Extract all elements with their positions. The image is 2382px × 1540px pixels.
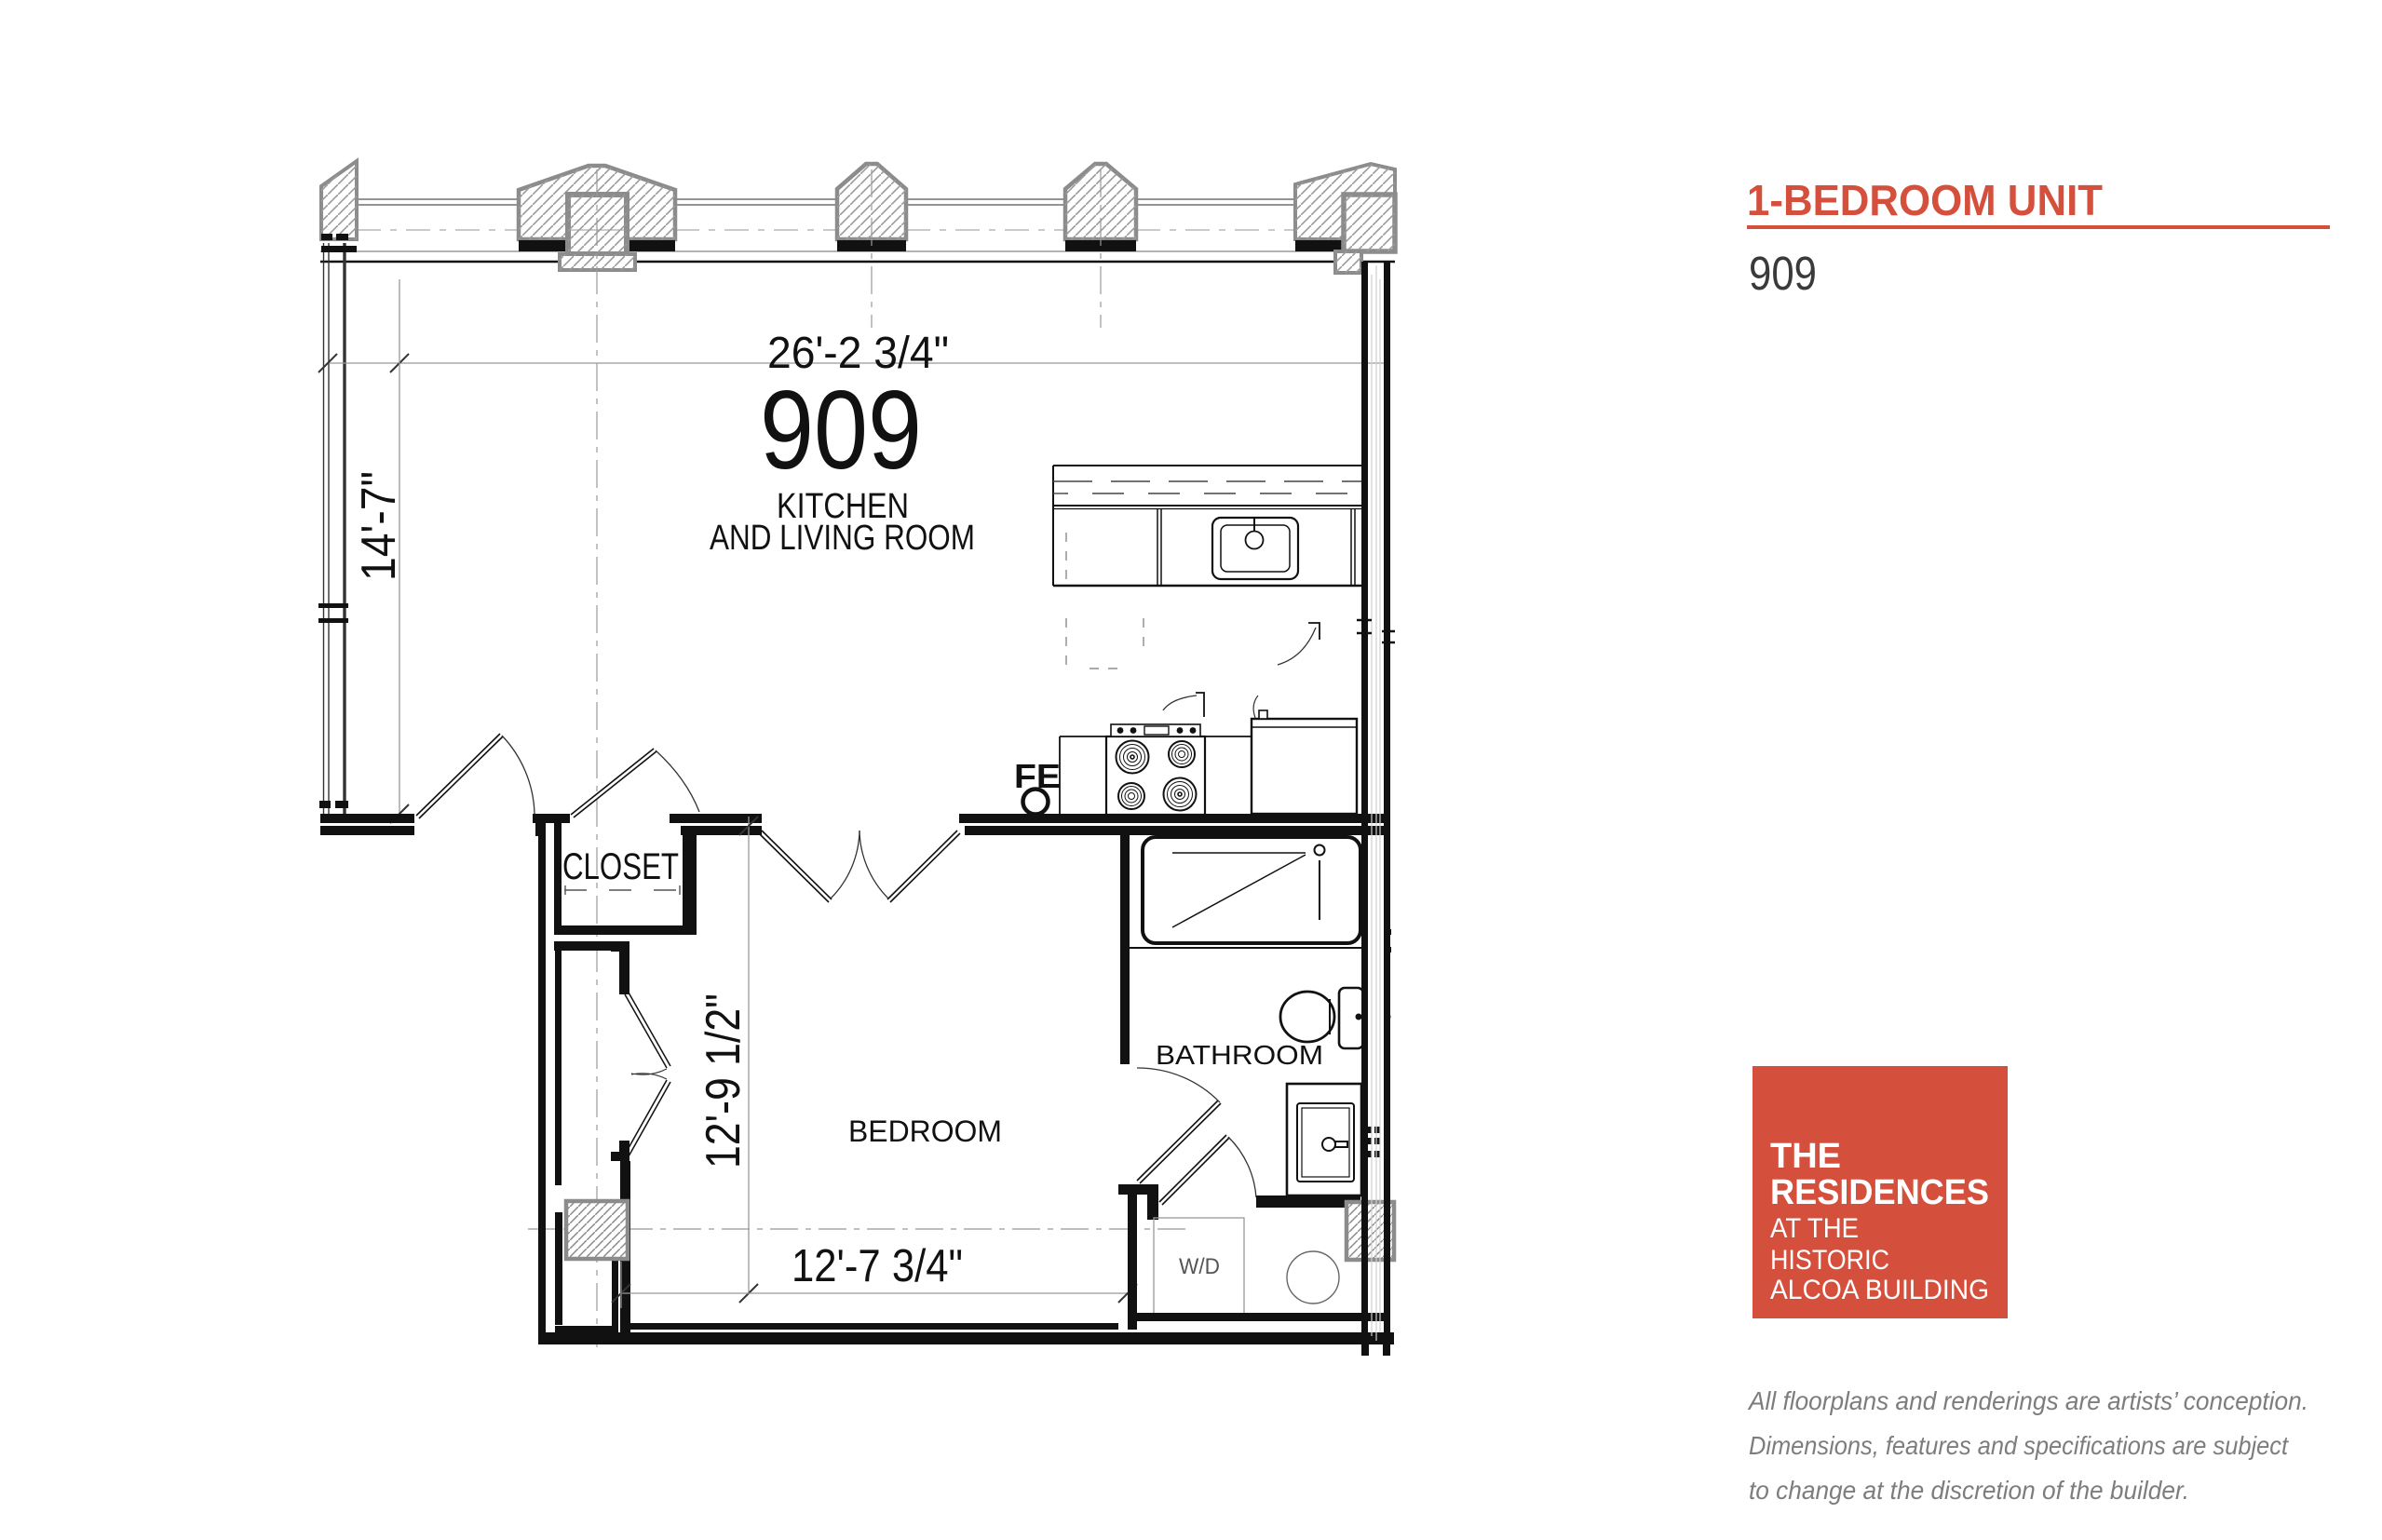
svg-text:12'-9 1/2": 12'-9 1/2" <box>697 993 751 1169</box>
svg-text:BATHROOM: BATHROOM <box>1156 1041 1323 1071</box>
svg-text:1-BEDROOM UNIT: 1-BEDROOM UNIT <box>1747 176 2103 224</box>
svg-text:BEDROOM: BEDROOM <box>848 1114 1002 1148</box>
svg-text:12'-7 3/4": 12'-7 3/4" <box>792 1241 963 1291</box>
svg-text:909: 909 <box>1749 247 1817 300</box>
svg-text:ALCOA BUILDING: ALCOA BUILDING <box>1770 1275 1989 1305</box>
svg-text:THE: THE <box>1770 1137 1841 1176</box>
svg-text:AND LIVING ROOM: AND LIVING ROOM <box>710 519 975 558</box>
svg-text:909: 909 <box>760 368 922 493</box>
svg-text:AT THE: AT THE <box>1770 1213 1859 1244</box>
svg-text:W/D: W/D <box>1179 1254 1220 1279</box>
svg-text:All floorplans and renderings: All floorplans and renderings are artist… <box>1747 1386 2308 1415</box>
svg-text:HISTORIC: HISTORIC <box>1770 1245 1889 1276</box>
svg-text:14'-7": 14'-7" <box>352 471 406 581</box>
svg-text:Dimensions, features and speci: Dimensions, features and specifications … <box>1749 1431 2289 1460</box>
svg-text:CLOSET: CLOSET <box>562 846 679 887</box>
svg-text:RESIDENCES: RESIDENCES <box>1770 1173 1989 1212</box>
svg-text:to change at the discretion of: to change at the discretion of the build… <box>1749 1476 2189 1505</box>
